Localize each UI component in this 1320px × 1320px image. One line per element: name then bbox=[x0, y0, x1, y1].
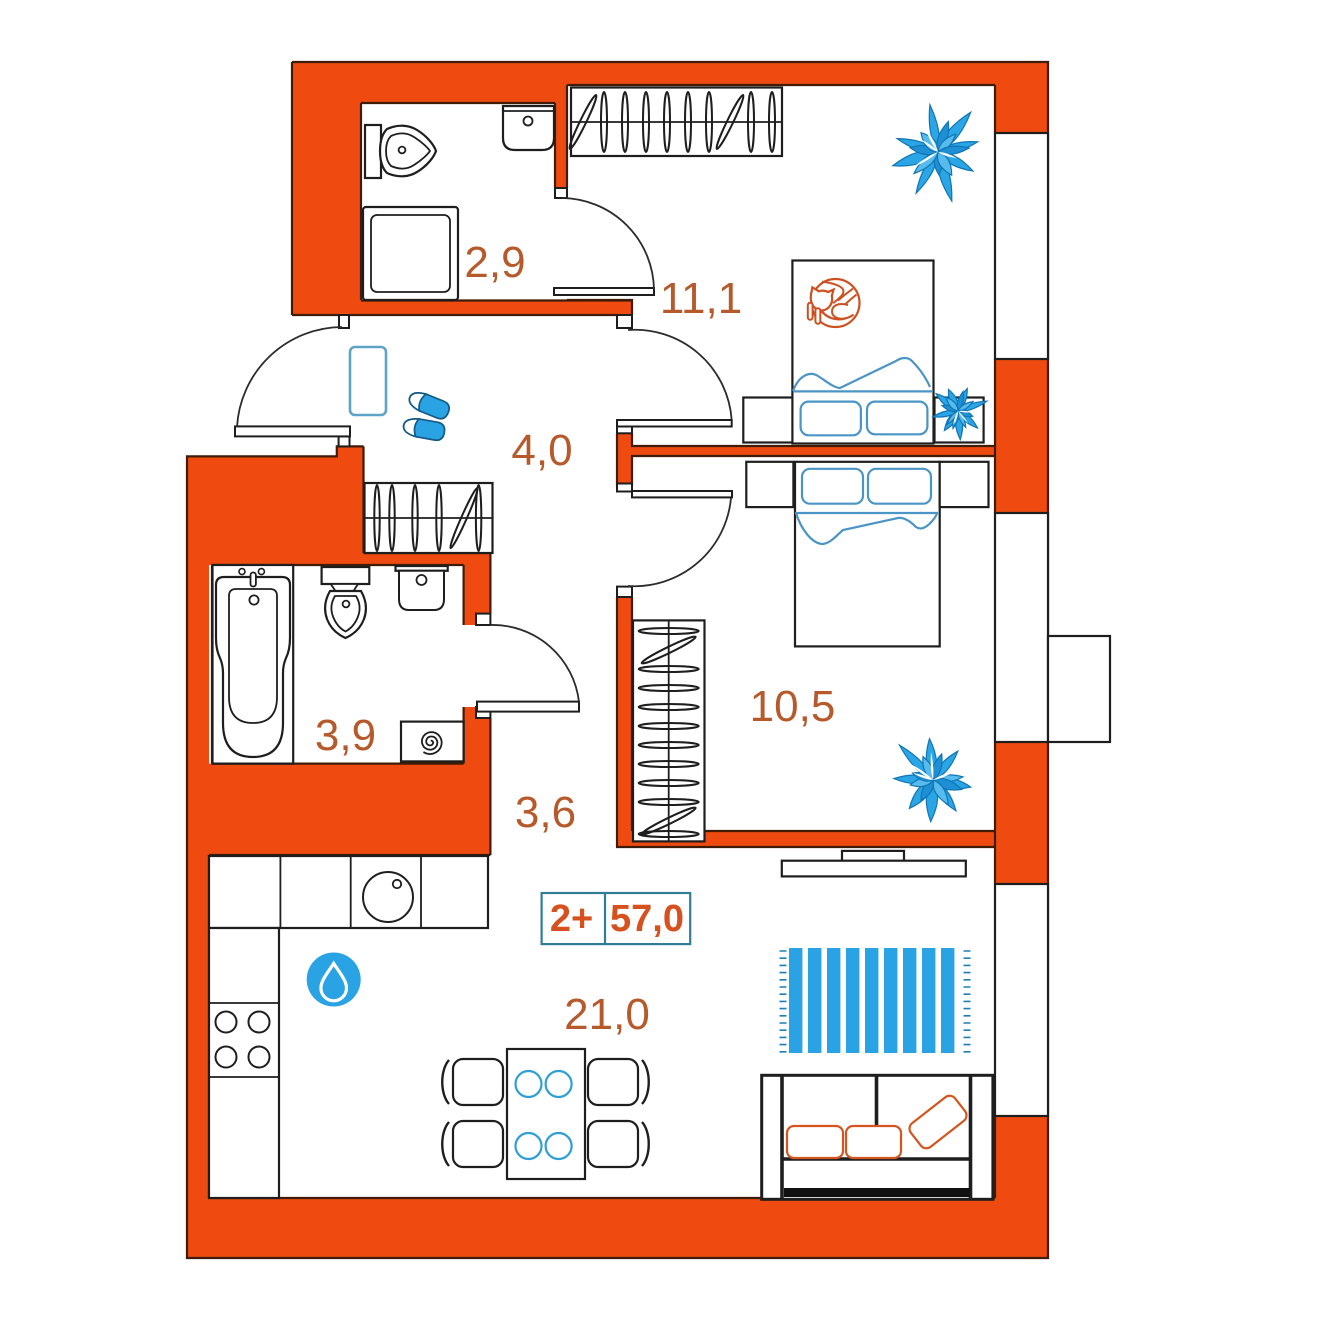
svg-text:57,0: 57,0 bbox=[610, 898, 684, 940]
svg-text:21,0: 21,0 bbox=[564, 990, 650, 1039]
svg-text:11,1: 11,1 bbox=[660, 274, 742, 323]
svg-text:10,5: 10,5 bbox=[750, 682, 836, 731]
svg-text:3,6: 3,6 bbox=[515, 788, 576, 837]
svg-text:3,9: 3,9 bbox=[315, 711, 376, 760]
svg-text:4,0: 4,0 bbox=[511, 426, 572, 475]
svg-text:2+: 2+ bbox=[550, 898, 593, 940]
svg-text:2,9: 2,9 bbox=[464, 238, 525, 287]
